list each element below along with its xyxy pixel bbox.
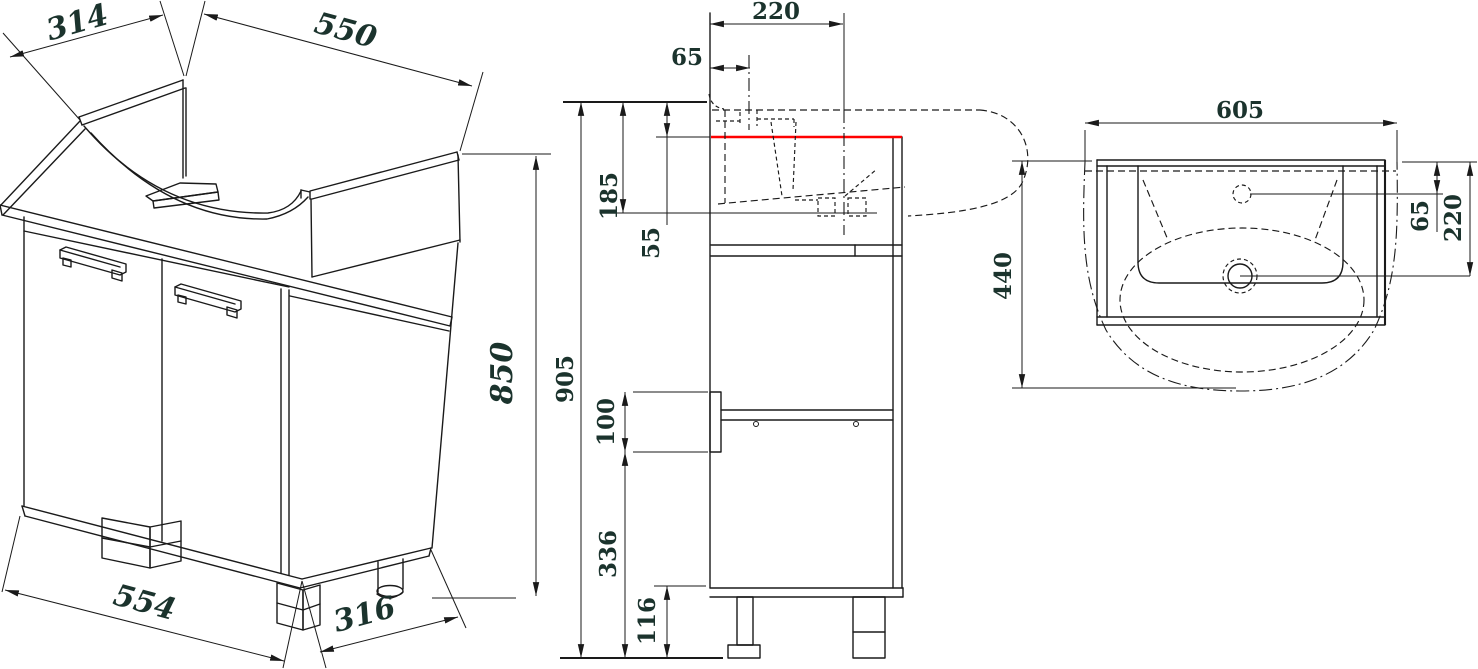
front-foot-pad [728,645,760,658]
door-handle-right [175,284,241,318]
dim-iso-top-depth: 314 [42,0,112,48]
dim-side-plinth: 116 [634,597,661,645]
basin-recess-outline [1138,166,1343,283]
dim-top-faucet-offset: 65 [1407,200,1434,232]
dim-side-shelf-to-floor: 336 [595,530,622,578]
dim-iso-height: 850 [485,342,520,406]
front-leg [737,597,753,645]
dim-side-faucet-offset: 65 [671,44,703,71]
dim-iso-bottom-width: 554 [110,578,180,628]
countertop-front-edge [0,205,452,317]
shelf-bracket [710,392,721,452]
vanity-technical-drawing: 314 550 850 554 316 [0,0,1478,669]
dim-side-basin-zone: 185 [596,172,623,220]
isometric-view: 314 550 850 554 316 [0,0,551,668]
dim-side-drain-offset: 220 [752,0,800,25]
dim-side-overall-height: 905 [552,355,579,403]
dim-side-basin-above: 55 [638,227,665,259]
washbasin-profile-dashed [709,94,1028,216]
dim-top-depth: 440 [990,252,1017,300]
dim-top-drain-offset: 220 [1440,194,1467,242]
foot-left [102,518,181,568]
sink-curve [84,126,301,213]
faucet-hole [1233,185,1251,203]
back-leg [853,597,885,658]
drawing-canvas: 314 550 850 554 316 [0,0,1478,669]
door-handle-left [60,247,126,281]
right-rim-top-edge [310,152,457,191]
dim-top-width: 605 [1216,97,1264,124]
dim-side-shelf-clearance: 100 [593,398,620,446]
side-elevation-view: 905 185 55 100 336 116 220 65 [552,0,1028,658]
cabinet-right-back-edge [432,243,458,548]
dim-iso-bottom-depth: 316 [330,590,400,640]
basin-bowl-dashed [1120,228,1364,372]
backsplash-top-edge [79,80,183,117]
top-plan-view: 605 440 65 220 [990,97,1477,391]
dim-iso-top-width: 550 [311,6,381,56]
